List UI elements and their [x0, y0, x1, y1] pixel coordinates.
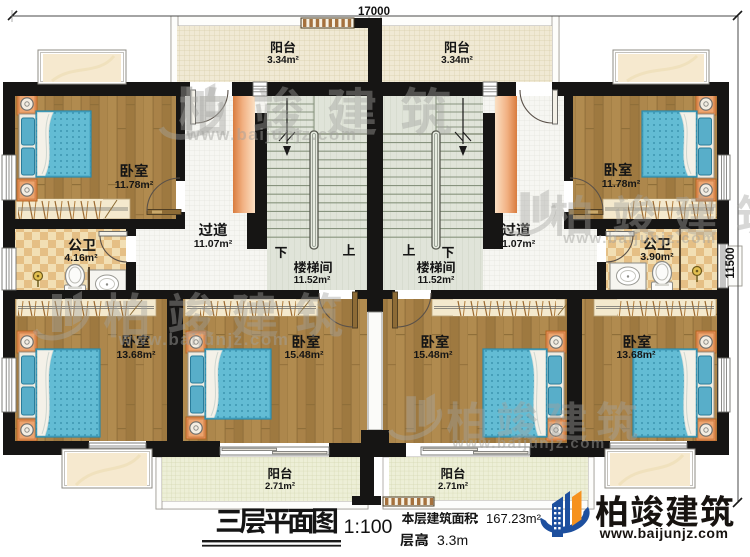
svg-text:15.48m²: 15.48m² — [284, 349, 324, 361]
svg-text:11500: 11500 — [725, 247, 737, 278]
svg-text:13.68m²: 13.68m² — [116, 349, 156, 361]
svg-text:11.52m²: 11.52m² — [418, 275, 455, 286]
svg-text:15.48m²: 15.48m² — [413, 349, 453, 361]
svg-text:13.68m²: 13.68m² — [616, 349, 656, 361]
svg-text:2.71m²: 2.71m² — [438, 481, 468, 492]
svg-text:www.baijunjz.com: www.baijunjz.com — [562, 230, 716, 247]
svg-text:3.90m²: 3.90m² — [640, 251, 674, 263]
svg-text:167.23m²: 167.23m² — [486, 511, 542, 526]
svg-text:3.34m²: 3.34m² — [267, 55, 299, 66]
svg-text:www.baijunjz.com: www.baijunjz.com — [118, 330, 290, 349]
svg-text:3.3m: 3.3m — [437, 532, 468, 548]
svg-text:www.baijunjz.com: www.baijunjz.com — [599, 525, 729, 541]
svg-text:11.07m²: 11.07m² — [194, 238, 233, 250]
svg-text:www.baijunjz.com: www.baijunjz.com — [186, 125, 358, 144]
svg-text:1:100: 1:100 — [344, 516, 393, 538]
svg-text:2.71m²: 2.71m² — [265, 481, 295, 492]
svg-text:11.78m²: 11.78m² — [115, 179, 154, 191]
svg-text:17000: 17000 — [358, 6, 390, 18]
svg-text:www.baijunjz.com: www.baijunjz.com — [451, 435, 605, 452]
svg-text:11.78m²: 11.78m² — [602, 178, 641, 190]
svg-text:11.52m²: 11.52m² — [294, 275, 331, 286]
svg-text:4.16m²: 4.16m² — [64, 252, 98, 264]
svg-text:11.07m²: 11.07m² — [497, 238, 536, 250]
svg-text:3.34m²: 3.34m² — [441, 55, 473, 66]
